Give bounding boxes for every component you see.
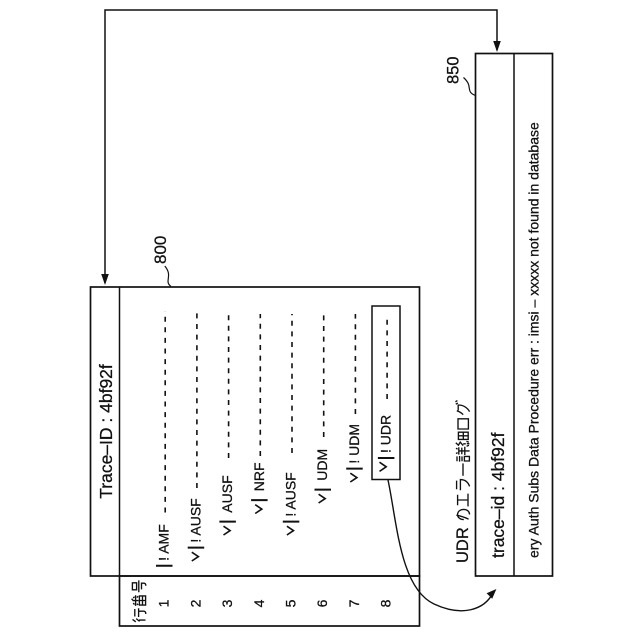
svg-text:UDR: UDR xyxy=(454,527,472,563)
svg-text:6: 6 xyxy=(314,599,330,607)
svg-text:7: 7 xyxy=(346,599,362,607)
svg-text:8: 8 xyxy=(378,599,394,607)
svg-text:Trace–ID : 4bf92f: Trace–ID : 4bf92f xyxy=(96,364,116,499)
svg-text:4: 4 xyxy=(251,599,267,607)
svg-text:NRF: NRF xyxy=(251,462,267,491)
svg-text:3: 3 xyxy=(219,599,235,607)
svg-text:! AUSF: ! AUSF xyxy=(283,472,299,516)
svg-text:5: 5 xyxy=(283,599,299,607)
svg-text:AUSF: AUSF xyxy=(219,475,235,512)
svg-text:1: 1 xyxy=(156,599,172,607)
svg-text:! UDM: ! UDM xyxy=(346,424,362,464)
svg-text:! UDR: ! UDR xyxy=(378,415,394,453)
svg-text:! AUSF: ! AUSF xyxy=(187,498,203,542)
svg-text:trace–id : 4bf92f: trace–id : 4bf92f xyxy=(488,432,508,558)
svg-text:! AMF: ! AMF xyxy=(156,524,172,561)
svg-text:2: 2 xyxy=(187,599,203,607)
svg-text:850: 850 xyxy=(445,56,463,84)
svg-text:800: 800 xyxy=(151,236,170,264)
svg-text:ery Auth Subs Data Procedure e: ery Auth Subs Data Procedure err : imsi … xyxy=(526,122,542,558)
svg-text:UDM: UDM xyxy=(314,449,330,481)
